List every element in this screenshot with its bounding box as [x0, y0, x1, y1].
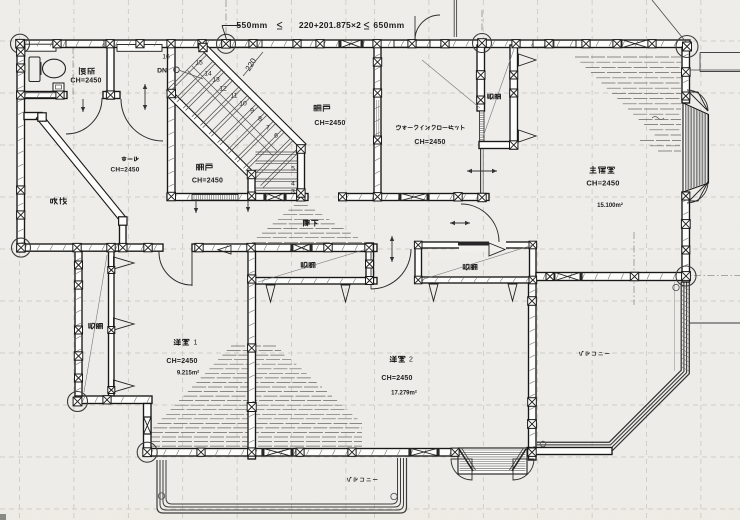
svg-text:14: 14 — [204, 70, 212, 77]
svg-text:2: 2 — [409, 357, 413, 364]
svg-text:9.215m²: 9.215m² — [177, 370, 199, 377]
svg-text:11: 11 — [230, 92, 237, 99]
svg-text:15: 15 — [195, 59, 203, 66]
svg-text:8: 8 — [258, 115, 262, 122]
svg-text:7: 7 — [266, 124, 270, 131]
svg-text:CH=2450: CH=2450 — [70, 78, 101, 85]
svg-text:6: 6 — [274, 132, 278, 139]
svg-text:4: 4 — [291, 180, 295, 187]
svg-text:15.100m²: 15.100m² — [597, 202, 623, 209]
svg-text:13: 13 — [212, 76, 220, 83]
svg-text:3: 3 — [291, 188, 295, 195]
svg-text:CH=2450: CH=2450 — [586, 179, 619, 188]
svg-text:CH=2450: CH=2450 — [314, 120, 345, 127]
svg-text:220+201.875×2: 220+201.875×2 — [299, 20, 361, 30]
svg-text:9: 9 — [250, 107, 254, 114]
svg-text:CH=2450: CH=2450 — [166, 358, 197, 365]
svg-text:16: 16 — [162, 53, 170, 60]
svg-text:5: 5 — [291, 165, 295, 172]
svg-text:CH=2450: CH=2450 — [192, 178, 223, 185]
svg-text:CH=2450: CH=2450 — [414, 139, 445, 146]
svg-text:1: 1 — [194, 340, 198, 347]
svg-text:DN: DN — [157, 68, 167, 75]
svg-text:10: 10 — [239, 100, 247, 107]
svg-text:CH=2450: CH=2450 — [110, 167, 139, 174]
svg-text:550mm: 550mm — [236, 20, 267, 30]
svg-text:12: 12 — [219, 85, 227, 92]
svg-text:17.279m²: 17.279m² — [391, 390, 417, 397]
svg-text:650mm: 650mm — [373, 20, 404, 30]
svg-text:CH=2450: CH=2450 — [381, 375, 412, 382]
